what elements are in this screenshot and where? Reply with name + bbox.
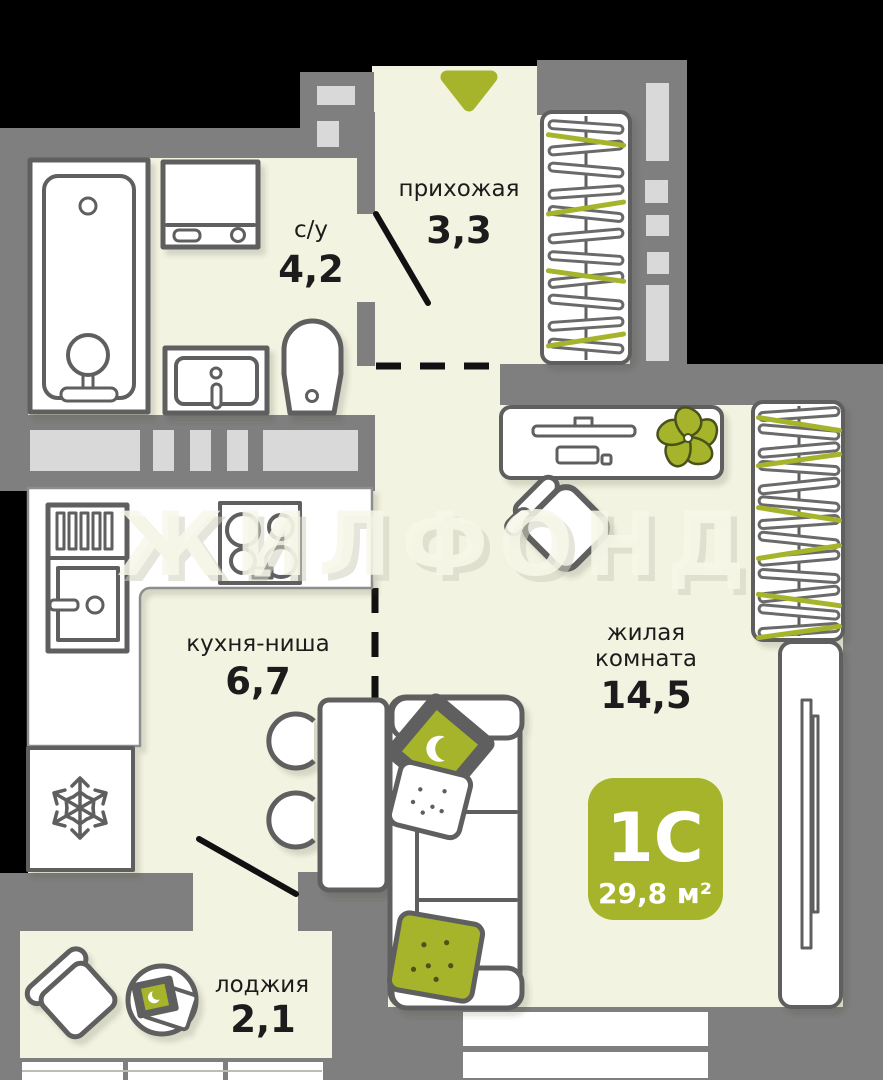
wall-vent xyxy=(645,180,668,203)
pillow-white xyxy=(387,760,472,840)
loggia-label: лоджия xyxy=(215,972,309,998)
pillow-olive xyxy=(388,911,484,1002)
monitor xyxy=(533,426,635,436)
bathroom-label: с/у xyxy=(294,217,328,243)
living-room-label-line1: жилая xyxy=(607,620,685,646)
mouse xyxy=(602,455,611,464)
wall-vent xyxy=(153,430,174,471)
living-room-wardrobe xyxy=(753,402,843,640)
chair xyxy=(269,714,314,768)
tv xyxy=(802,700,811,948)
wall-vent xyxy=(317,86,355,105)
hallway-label: прихожая xyxy=(399,176,520,202)
fridge xyxy=(28,748,133,870)
chair xyxy=(269,793,314,847)
bathtub-drain xyxy=(80,198,96,214)
hallway-area: 3,3 xyxy=(426,209,492,252)
wall-vent xyxy=(646,285,669,361)
wall-vent xyxy=(317,121,339,147)
total-area: 29,8 м² xyxy=(598,877,712,910)
watermark-text: ЖИЛФОНД xyxy=(117,493,756,596)
keyboard xyxy=(557,447,598,463)
toilet xyxy=(284,321,341,413)
wall-vent xyxy=(190,430,211,471)
bathtub-faucet xyxy=(68,335,108,375)
hallway-passage-floor xyxy=(374,364,500,404)
kitchen-label: кухня-ниша xyxy=(186,631,329,657)
sofa xyxy=(382,690,522,1008)
dining-table xyxy=(320,700,387,890)
loggia-doorway-floor xyxy=(192,871,298,931)
living-room-label-line2: комната xyxy=(595,646,697,672)
living-room-window xyxy=(463,1012,708,1078)
wall-vent xyxy=(263,430,358,471)
bathroom-area: 4,2 xyxy=(278,248,344,291)
bathroom-sink xyxy=(165,348,267,413)
wall-vent xyxy=(647,252,669,274)
loggia-table xyxy=(128,966,197,1034)
loggia-area: 2,1 xyxy=(230,998,296,1041)
wall-vent xyxy=(227,430,248,471)
wall-vent xyxy=(646,215,669,236)
washing-machine xyxy=(163,162,258,247)
wall-vent xyxy=(646,83,669,161)
kitchen-sink-unit xyxy=(48,505,127,651)
plan-type-badge: 1С 29,8 м² xyxy=(588,778,723,920)
living-room-area: 14,5 xyxy=(600,674,691,717)
tv-stand xyxy=(780,642,841,1007)
plan-type: 1С xyxy=(606,799,703,878)
loggia-window xyxy=(22,1062,323,1080)
wall-vent xyxy=(30,430,140,471)
watermark: ЖИЛФОНД ЖИЛФОНД xyxy=(117,493,762,602)
bathtub xyxy=(30,160,148,412)
kitchen-area: 6,7 xyxy=(225,660,291,703)
desk xyxy=(501,405,722,478)
hallway-wardrobe xyxy=(542,112,630,363)
floor-plan: ЖИЛФОНД ЖИЛФОНД прихожая 3,3 с/у 4,2 кух… xyxy=(0,0,883,1080)
